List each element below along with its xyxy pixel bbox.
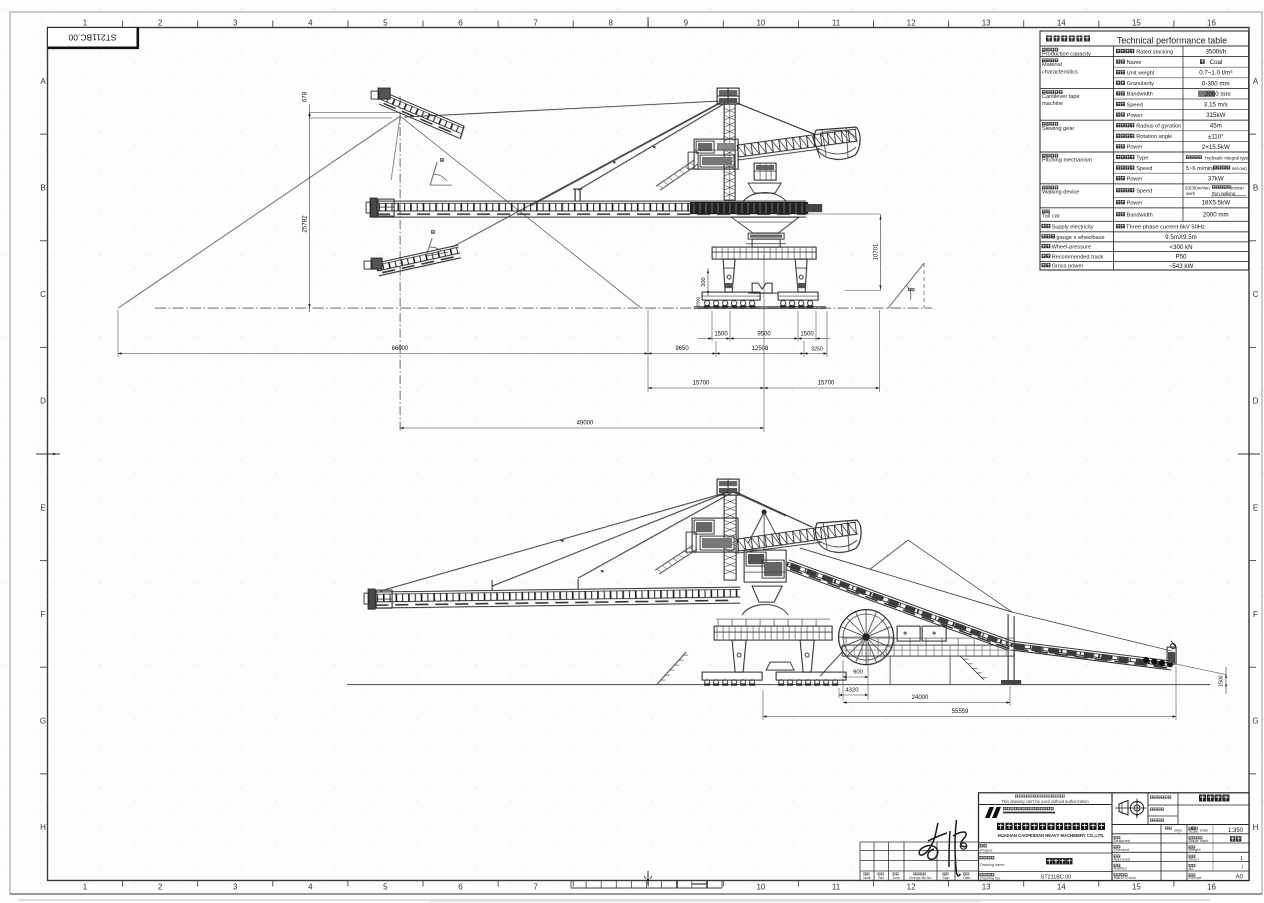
svg-text:characteristics: characteristics bbox=[1042, 69, 1078, 75]
svg-text:~543 kW: ~543 kW bbox=[1169, 263, 1194, 270]
svg-text:9650: 9650 bbox=[675, 346, 689, 352]
svg-text:gauge x wheelbase: gauge x wheelbase bbox=[1056, 235, 1104, 241]
svg-text:machine: machine bbox=[1042, 101, 1063, 107]
svg-text:49000: 49000 bbox=[577, 421, 594, 427]
svg-text:Power: Power bbox=[1127, 145, 1143, 151]
svg-text:4320: 4320 bbox=[846, 688, 859, 694]
svg-text:Type: Type bbox=[1136, 155, 1148, 161]
svg-text:Change file No.: Change file No. bbox=[909, 876, 932, 880]
svg-text:6: 6 bbox=[458, 883, 463, 892]
svg-text:15700: 15700 bbox=[693, 381, 710, 387]
svg-text:Ratified: Ratified bbox=[1114, 866, 1127, 871]
svg-text:work: work bbox=[1186, 191, 1196, 196]
svg-text:9.5mX9.5m: 9.5mX9.5m bbox=[1165, 234, 1197, 241]
svg-text:Power: Power bbox=[1127, 177, 1143, 183]
svg-text:1: 1 bbox=[1240, 856, 1243, 862]
svg-text:12: 12 bbox=[907, 883, 916, 892]
svg-text:Granularity: Granularity bbox=[1127, 81, 1155, 87]
svg-text:Tail car: Tail car bbox=[1042, 213, 1060, 219]
svg-text:1500: 1500 bbox=[714, 332, 728, 338]
svg-text:14: 14 bbox=[1057, 19, 1066, 28]
svg-text:10: 10 bbox=[756, 19, 765, 28]
svg-text:25782: 25782 bbox=[302, 215, 309, 233]
svg-text:This drawing can't be used wit: This drawing can't be used without autho… bbox=[1001, 799, 1089, 804]
svg-text:Stage mark: Stage mark bbox=[1189, 838, 1209, 843]
svg-text:B: B bbox=[1253, 183, 1258, 192]
svg-text:5: 5 bbox=[383, 19, 388, 28]
svg-text:10701: 10701 bbox=[874, 243, 880, 260]
svg-text:4: 4 bbox=[308, 883, 313, 892]
svg-text:Rated stacking: Rated stacking bbox=[1136, 49, 1173, 55]
svg-text:Recommended track: Recommended track bbox=[1052, 254, 1104, 260]
svg-text:A0: A0 bbox=[1236, 875, 1244, 881]
svg-text:set.ow): set.ow) bbox=[1232, 166, 1247, 171]
svg-text:B: B bbox=[40, 183, 45, 192]
svg-text:3250: 3250 bbox=[811, 347, 823, 353]
svg-text:Mark: Mark bbox=[863, 876, 871, 880]
svg-text:Date: Date bbox=[1200, 828, 1209, 833]
svg-text:1500: 1500 bbox=[1219, 675, 1225, 686]
svg-text:Rotation angle: Rotation angle bbox=[1136, 134, 1172, 140]
svg-text:C: C bbox=[1253, 290, 1259, 299]
svg-text:Material: Material bbox=[1042, 62, 1062, 68]
svg-text:900: 900 bbox=[853, 670, 863, 676]
svg-text:<300 kN: <300 kN bbox=[1169, 244, 1192, 251]
svg-text:Sign: Sign bbox=[1174, 828, 1182, 833]
svg-text:Slewing gear: Slewing gear bbox=[1042, 126, 1074, 132]
svg-text:E: E bbox=[1253, 503, 1258, 512]
svg-text:Bandwidth: Bandwidth bbox=[1127, 213, 1153, 219]
svg-text:Drawing name: Drawing name bbox=[980, 863, 1004, 867]
svg-text:3500t/h: 3500t/h bbox=[1205, 49, 1226, 56]
svg-text:Supply electricity: Supply electricity bbox=[1052, 225, 1094, 231]
svg-text:A: A bbox=[1253, 77, 1259, 86]
svg-text:11: 11 bbox=[832, 883, 841, 892]
svg-text:16: 16 bbox=[1207, 19, 1216, 28]
svg-text:3: 3 bbox=[233, 19, 238, 28]
svg-text:2: 2 bbox=[158, 883, 163, 892]
svg-text:Wheel-pressure: Wheel-pressure bbox=[1052, 245, 1091, 251]
svg-text:14: 14 bbox=[1057, 883, 1066, 892]
svg-text:2000 mm: 2000 mm bbox=[1205, 91, 1231, 98]
svg-text:Checked: Checked bbox=[1114, 847, 1129, 852]
svg-text:H: H bbox=[1253, 823, 1259, 832]
svg-text:13: 13 bbox=[982, 883, 991, 892]
svg-text:Stand.Check: Stand.Check bbox=[1114, 875, 1136, 880]
svg-text:No.: No. bbox=[1189, 866, 1195, 871]
svg-text:G: G bbox=[40, 717, 46, 726]
svg-text:G: G bbox=[1252, 717, 1258, 726]
svg-text:E: E bbox=[40, 503, 45, 512]
svg-text:Technical performance table: Technical performance table bbox=[1117, 36, 1227, 46]
svg-text:5~6 m/min(: 5~6 m/min( bbox=[1186, 166, 1214, 172]
svg-text:Designed: Designed bbox=[1114, 838, 1130, 843]
svg-text:1:350: 1:350 bbox=[1228, 828, 1244, 834]
svg-text:0.7~1.0 t/m³: 0.7~1.0 t/m³ bbox=[1199, 70, 1232, 77]
svg-text:2×15.5kW: 2×15.5kW bbox=[1202, 144, 1230, 151]
svg-text:Speed: Speed bbox=[1127, 102, 1143, 108]
svg-text:15: 15 bbox=[1132, 883, 1141, 892]
svg-text:Unit weight: Unit weight bbox=[1127, 71, 1155, 77]
svg-text:12508: 12508 bbox=[752, 346, 769, 352]
svg-text:Sign: Sign bbox=[943, 876, 950, 880]
svg-text:Approved: Approved bbox=[1114, 856, 1131, 861]
svg-text:Sheet: Sheet bbox=[1189, 857, 1200, 862]
svg-text:15700: 15700 bbox=[818, 381, 835, 387]
svg-text:D: D bbox=[1253, 397, 1259, 406]
svg-text:Name: Name bbox=[1127, 60, 1142, 66]
svg-text:7: 7 bbox=[533, 883, 538, 892]
svg-text:Walking device: Walking device bbox=[1042, 189, 1079, 195]
svg-text:H: H bbox=[40, 823, 46, 832]
svg-text:Production capacity: Production capacity bbox=[1042, 52, 1091, 58]
svg-text:45m: 45m bbox=[1210, 123, 1222, 130]
svg-text:Cantilever tape: Cantilever tape bbox=[1042, 94, 1080, 100]
svg-text:13: 13 bbox=[982, 19, 991, 28]
svg-text:12: 12 bbox=[907, 19, 916, 28]
svg-text:2: 2 bbox=[158, 19, 163, 28]
svg-text:16: 16 bbox=[1207, 883, 1216, 892]
svg-text:C: C bbox=[40, 290, 46, 299]
svg-text:Zone: Zone bbox=[892, 876, 900, 880]
svg-text:20(30)m/min: 20(30)m/min bbox=[1185, 185, 1210, 190]
svg-text:0-300 mm: 0-300 mm bbox=[1202, 80, 1230, 87]
svg-text:A: A bbox=[40, 77, 46, 86]
svg-text:Date: Date bbox=[963, 876, 970, 880]
svg-text:3m/min: 3m/min bbox=[1230, 185, 1244, 190]
svg-text:Scale: Scale bbox=[1189, 829, 1199, 834]
svg-text:F: F bbox=[1253, 610, 1258, 619]
svg-text:±110°: ±110° bbox=[1208, 133, 1224, 140]
svg-text:P50: P50 bbox=[1175, 254, 1187, 261]
svg-text:Speed: Speed bbox=[1136, 189, 1152, 195]
svg-text:66000: 66000 bbox=[392, 346, 409, 352]
svg-text:Power: Power bbox=[1127, 113, 1143, 119]
svg-text:Gross power: Gross power bbox=[1052, 264, 1084, 270]
svg-text:15: 15 bbox=[1132, 19, 1141, 28]
svg-text:Three phase current 6kV 50Hz: Three phase current 6kV 50Hz bbox=[1126, 225, 1205, 231]
svg-text:Project: Project bbox=[980, 848, 993, 853]
svg-text:Pitching mechanism: Pitching mechanism bbox=[1042, 158, 1092, 164]
svg-text:Format: Format bbox=[1189, 875, 1202, 880]
svg-text:315kW: 315kW bbox=[1206, 112, 1225, 119]
svg-text:ST211BC.00: ST211BC.00 bbox=[68, 33, 116, 43]
svg-text:9500: 9500 bbox=[757, 332, 771, 338]
svg-text:7: 7 bbox=[533, 19, 538, 28]
svg-text:D: D bbox=[40, 397, 46, 406]
svg-text:Radius of gyration: Radius of gyration bbox=[1136, 124, 1181, 130]
svg-text:8: 8 bbox=[608, 19, 613, 28]
svg-text:Site: Site bbox=[878, 876, 884, 880]
svg-text:1: 1 bbox=[83, 19, 88, 28]
svg-text:2500: 2500 bbox=[696, 296, 701, 307]
svg-text:Bandwidth: Bandwidth bbox=[1127, 92, 1153, 98]
svg-text:Coal: Coal bbox=[1210, 59, 1223, 66]
svg-text:Hydraulic integral type: Hydraulic integral type bbox=[1205, 155, 1249, 160]
svg-text:Weight: Weight bbox=[1189, 847, 1202, 852]
svg-text:Speed: Speed bbox=[1136, 166, 1152, 172]
svg-text:ST211BC.00: ST211BC.00 bbox=[1041, 875, 1071, 881]
svg-text:11: 11 bbox=[832, 19, 841, 28]
svg-text:2000 mm: 2000 mm bbox=[1203, 212, 1229, 219]
svg-text:Drawing No.: Drawing No. bbox=[980, 877, 1001, 881]
svg-text:9: 9 bbox=[684, 19, 689, 28]
svg-text:200: 200 bbox=[701, 277, 707, 286]
svg-text:6: 6 bbox=[458, 19, 463, 28]
svg-text:55559: 55559 bbox=[952, 709, 969, 715]
svg-text:Run-walking: Run-walking bbox=[1212, 191, 1236, 196]
svg-text:4: 4 bbox=[308, 19, 313, 28]
svg-text:1500: 1500 bbox=[800, 332, 814, 338]
svg-text:5: 5 bbox=[383, 883, 388, 892]
svg-text:37kW: 37kW bbox=[1208, 176, 1224, 183]
svg-text:24000: 24000 bbox=[912, 695, 929, 701]
svg-text:Power: Power bbox=[1127, 201, 1143, 207]
svg-text:1: 1 bbox=[83, 883, 88, 892]
svg-text:3: 3 bbox=[233, 883, 238, 892]
svg-text:HUADIAN CAOFEIDIAN HEAVY MACHI: HUADIAN CAOFEIDIAN HEAVY MACHINERY CO.,L… bbox=[998, 833, 1105, 838]
svg-text:3.15 m/s: 3.15 m/s bbox=[1204, 102, 1228, 109]
svg-text:18X5.5kW: 18X5.5kW bbox=[1202, 200, 1231, 207]
svg-text:F: F bbox=[41, 610, 46, 619]
svg-text:10: 10 bbox=[756, 883, 765, 892]
svg-text:678: 678 bbox=[302, 91, 309, 102]
